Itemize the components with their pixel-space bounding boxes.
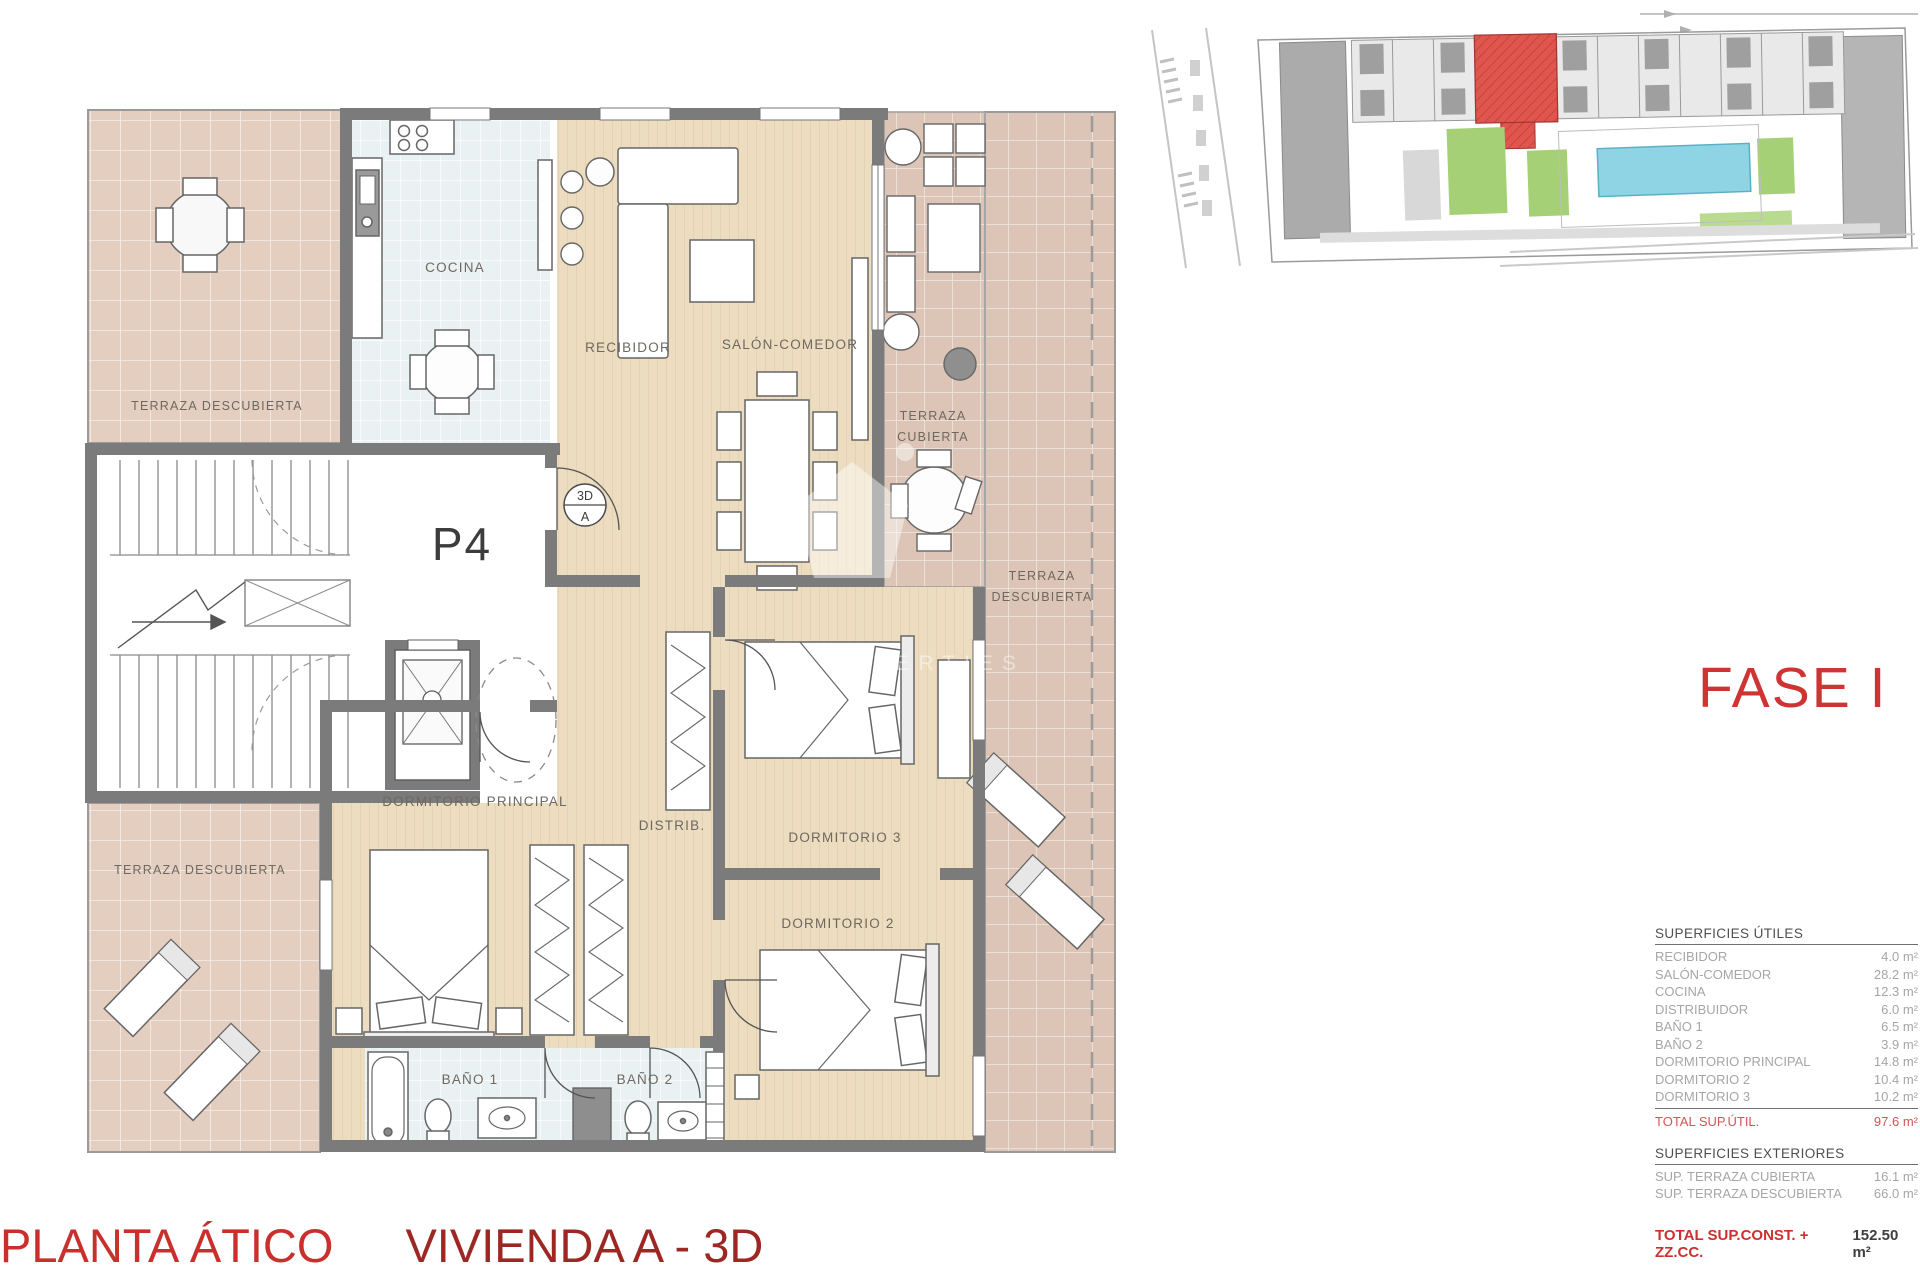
site-building-left	[1279, 41, 1350, 239]
total-construido-row: TOTAL SUP.CONST. + ZZ.CC. 152.50 m²	[1655, 1227, 1918, 1261]
total-construido-value: 152.50 m²	[1852, 1227, 1918, 1261]
area-row: DISTRIBUIDOR6.0 m²	[1655, 1001, 1918, 1019]
label-cocina: COCINA	[425, 260, 485, 275]
label-terraza-right-2: DESCUBIERTA	[992, 590, 1093, 604]
floor-plan-drawing: P4 3D A	[0, 0, 1920, 1280]
label-terraza-right-1: TERRAZA	[1009, 569, 1076, 583]
label-dormitorio-3: DORMITORIO 3	[788, 830, 901, 845]
marker-3d-a: 3D A	[564, 484, 606, 526]
phase-title: FASE I	[1698, 655, 1918, 721]
sheet-title: PLANTA ÁTICO VIVIENDA A - 3D	[0, 1218, 1200, 1273]
label-terrace-top-left: TERRAZA DESCUBIERTA	[131, 399, 303, 413]
area-row: DORMITORIO 210.4 m²	[1655, 1071, 1918, 1089]
site-building-right	[1840, 35, 1906, 238]
site-plan	[1152, 10, 1918, 268]
shower-block	[573, 1088, 611, 1148]
watermark-text: PROPERTIES	[800, 652, 1025, 675]
label-terraza-cubierta-2: CUBIERTA	[897, 430, 969, 444]
floor-plan: P4 3D A	[85, 108, 1115, 1152]
terrace-right-floor	[985, 112, 1115, 1152]
label-recibidor: RECIBIDOR	[585, 340, 671, 355]
sheet-title-unit: VIVIENDA A - 3D	[405, 1218, 763, 1273]
area-row: RECIBIDOR4.0 m²	[1655, 948, 1918, 966]
label-distrib: DISTRIB.	[639, 818, 706, 833]
area-row: SALÓN-COMEDOR28.2 m²	[1655, 966, 1918, 984]
exteriores-header: SUPERFICIES EXTERIORES	[1655, 1146, 1918, 1165]
area-row: BAÑO 23.9 m²	[1655, 1036, 1918, 1054]
marker-a: A	[581, 510, 590, 524]
hall-stools	[561, 171, 583, 265]
elevator	[385, 640, 480, 790]
area-row: DORMITORIO PRINCIPAL14.8 m²	[1655, 1053, 1918, 1071]
total-construido-label: TOTAL SUP.CONST. + ZZ.CC.	[1655, 1227, 1852, 1261]
area-row: COCINA12.3 m²	[1655, 983, 1918, 1001]
areas-panel: SUPERFICIES ÚTILES RECIBIDOR4.0 m² SALÓN…	[1655, 926, 1918, 1261]
label-terrace-bottom-left: TERRAZA DESCUBIERTA	[114, 863, 286, 877]
marker-3d: 3D	[577, 489, 593, 503]
label-bano-1: BAÑO 1	[442, 1072, 499, 1087]
utiles-total-value: 97.6 m²	[1874, 1113, 1918, 1130]
label-dormitorio-principal: DORMITORIO PRINCIPAL	[382, 794, 568, 809]
label-bano-2: BAÑO 2	[617, 1072, 674, 1087]
site-highlighted-unit	[1474, 34, 1558, 123]
area-row: DORMITORIO 310.2 m²	[1655, 1088, 1918, 1106]
utiles-total-label: TOTAL SUP.ÚTIL.	[1655, 1113, 1759, 1130]
utiles-total-row: TOTAL SUP.ÚTIL. 97.6 m²	[1655, 1108, 1918, 1130]
sheet-title-floor: PLANTA ÁTICO	[0, 1218, 333, 1273]
area-row: SUP. TERRAZA DESCUBIERTA66.0 m²	[1655, 1185, 1918, 1203]
label-dormitorio-2: DORMITORIO 2	[781, 916, 894, 931]
area-row: SUP. TERRAZA CUBIERTA16.1 m²	[1655, 1168, 1918, 1186]
site-pool	[1597, 143, 1751, 196]
label-terraza-cubierta-1: TERRAZA	[900, 409, 967, 423]
area-row: BAÑO 16.5 m²	[1655, 1018, 1918, 1036]
utiles-header: SUPERFICIES ÚTILES	[1655, 926, 1918, 945]
unit-label: P4	[432, 518, 492, 570]
page: P4 3D A	[0, 0, 1920, 1280]
terrace-top-left-floor	[88, 110, 346, 443]
master-bedroom-furniture	[336, 845, 628, 1045]
label-salon: SALÓN-COMEDOR	[722, 337, 858, 352]
